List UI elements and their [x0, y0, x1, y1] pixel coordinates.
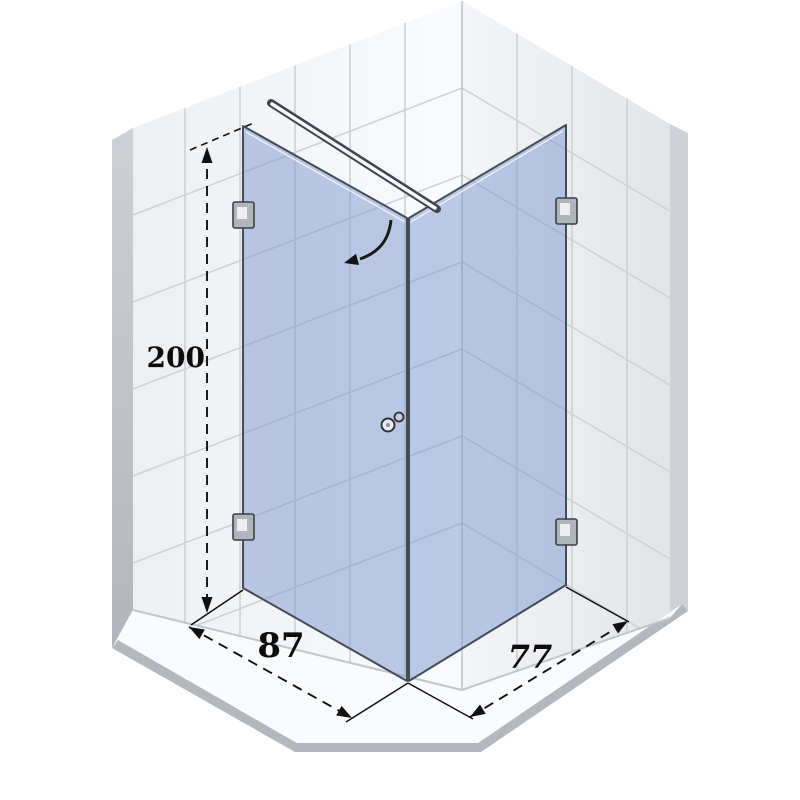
width-right-label: 77 [508, 638, 553, 676]
height-label: 200 [147, 341, 205, 374]
wall-bracket-right-lower [556, 519, 577, 545]
shower-enclosure-diagram: 200 87 77 [0, 0, 800, 800]
width-left-label: 87 [257, 626, 304, 666]
diagram-canvas: 200 87 77 [0, 0, 800, 800]
wall-bracket-left-lower [233, 514, 254, 540]
left-wall-edge-band [112, 128, 133, 648]
right-wall-edge-band [670, 124, 688, 618]
wall-bracket-left-upper [233, 202, 254, 228]
wall-bracket-right-upper [556, 198, 577, 224]
